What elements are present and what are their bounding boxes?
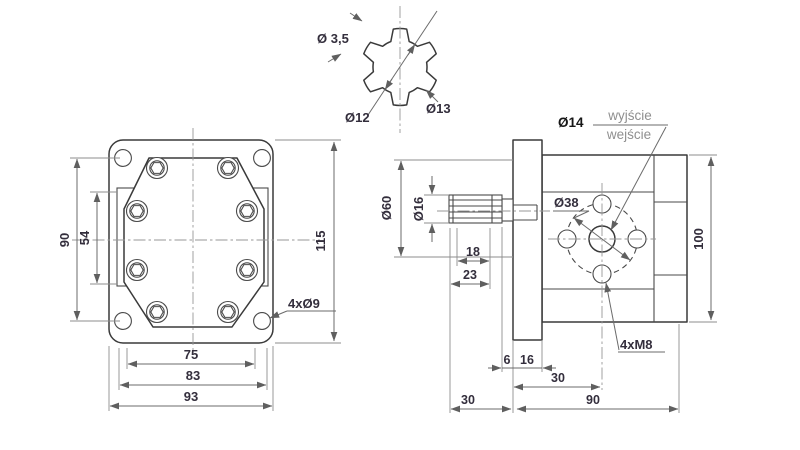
corner-hole [254,313,271,330]
flange-pilot-diameter-label: Ø60 [379,196,394,221]
spline-outer-diameter-label: Ø13 [426,101,451,116]
dim-body-height: 54 [77,230,92,245]
spline-tooth-width-label: Ø 3,5 [317,31,349,46]
dim-spline-length: 18 [466,245,480,259]
port-diameter-label: Ø14 [558,115,584,130]
port-outlet-label: wyjście [607,108,652,123]
dim-bolt-spacing-vertical: 90 [57,233,72,247]
spline-detail-view: Ø 3,5 Ø12 Ø13 [317,6,451,133]
corner-hole [254,150,271,167]
technical-drawing-page: Ø 3,5 Ø12 Ø13 [0,0,800,450]
dim-shaft-protrusion: 30 [461,393,475,407]
dim-side-body-height: 100 [691,228,706,250]
mounting-threads-label: 4xM8 [620,337,653,352]
front-view: 90 54 115 4xØ9 75 83 93 [57,128,341,411]
mounting-flange-side [513,140,542,340]
dim-flange-thickness: 16 [520,353,534,367]
front-cover [124,158,264,327]
dim-width-overall: 93 [184,389,198,404]
dim-flange-to-port-center: 30 [551,371,565,385]
bolt-circle-diameter-label: Ø38 [554,195,579,210]
corner-holes-label: 4xØ9 [288,296,320,311]
shaft-diameter-label: Ø16 [411,197,426,222]
gear-pump-drawing: Ø 3,5 Ø12 Ø13 [0,0,800,450]
side-view: Ø14 wyjście wejście Ø60 Ø16 Ø38 4xM8 [379,108,717,413]
dim-height-overall: 115 [313,231,328,252]
dim-shaft-length: 23 [463,268,477,282]
dim-bolt-spacing-horizontal: 75 [184,347,198,362]
spline-root-diameter-label: Ø12 [345,110,370,125]
dim-spline-to-flange-gap: 6 [504,353,511,367]
dim-body-length: 90 [586,393,600,407]
dim-body-width: 83 [186,368,200,383]
port-inlet-label: wejście [606,127,651,142]
